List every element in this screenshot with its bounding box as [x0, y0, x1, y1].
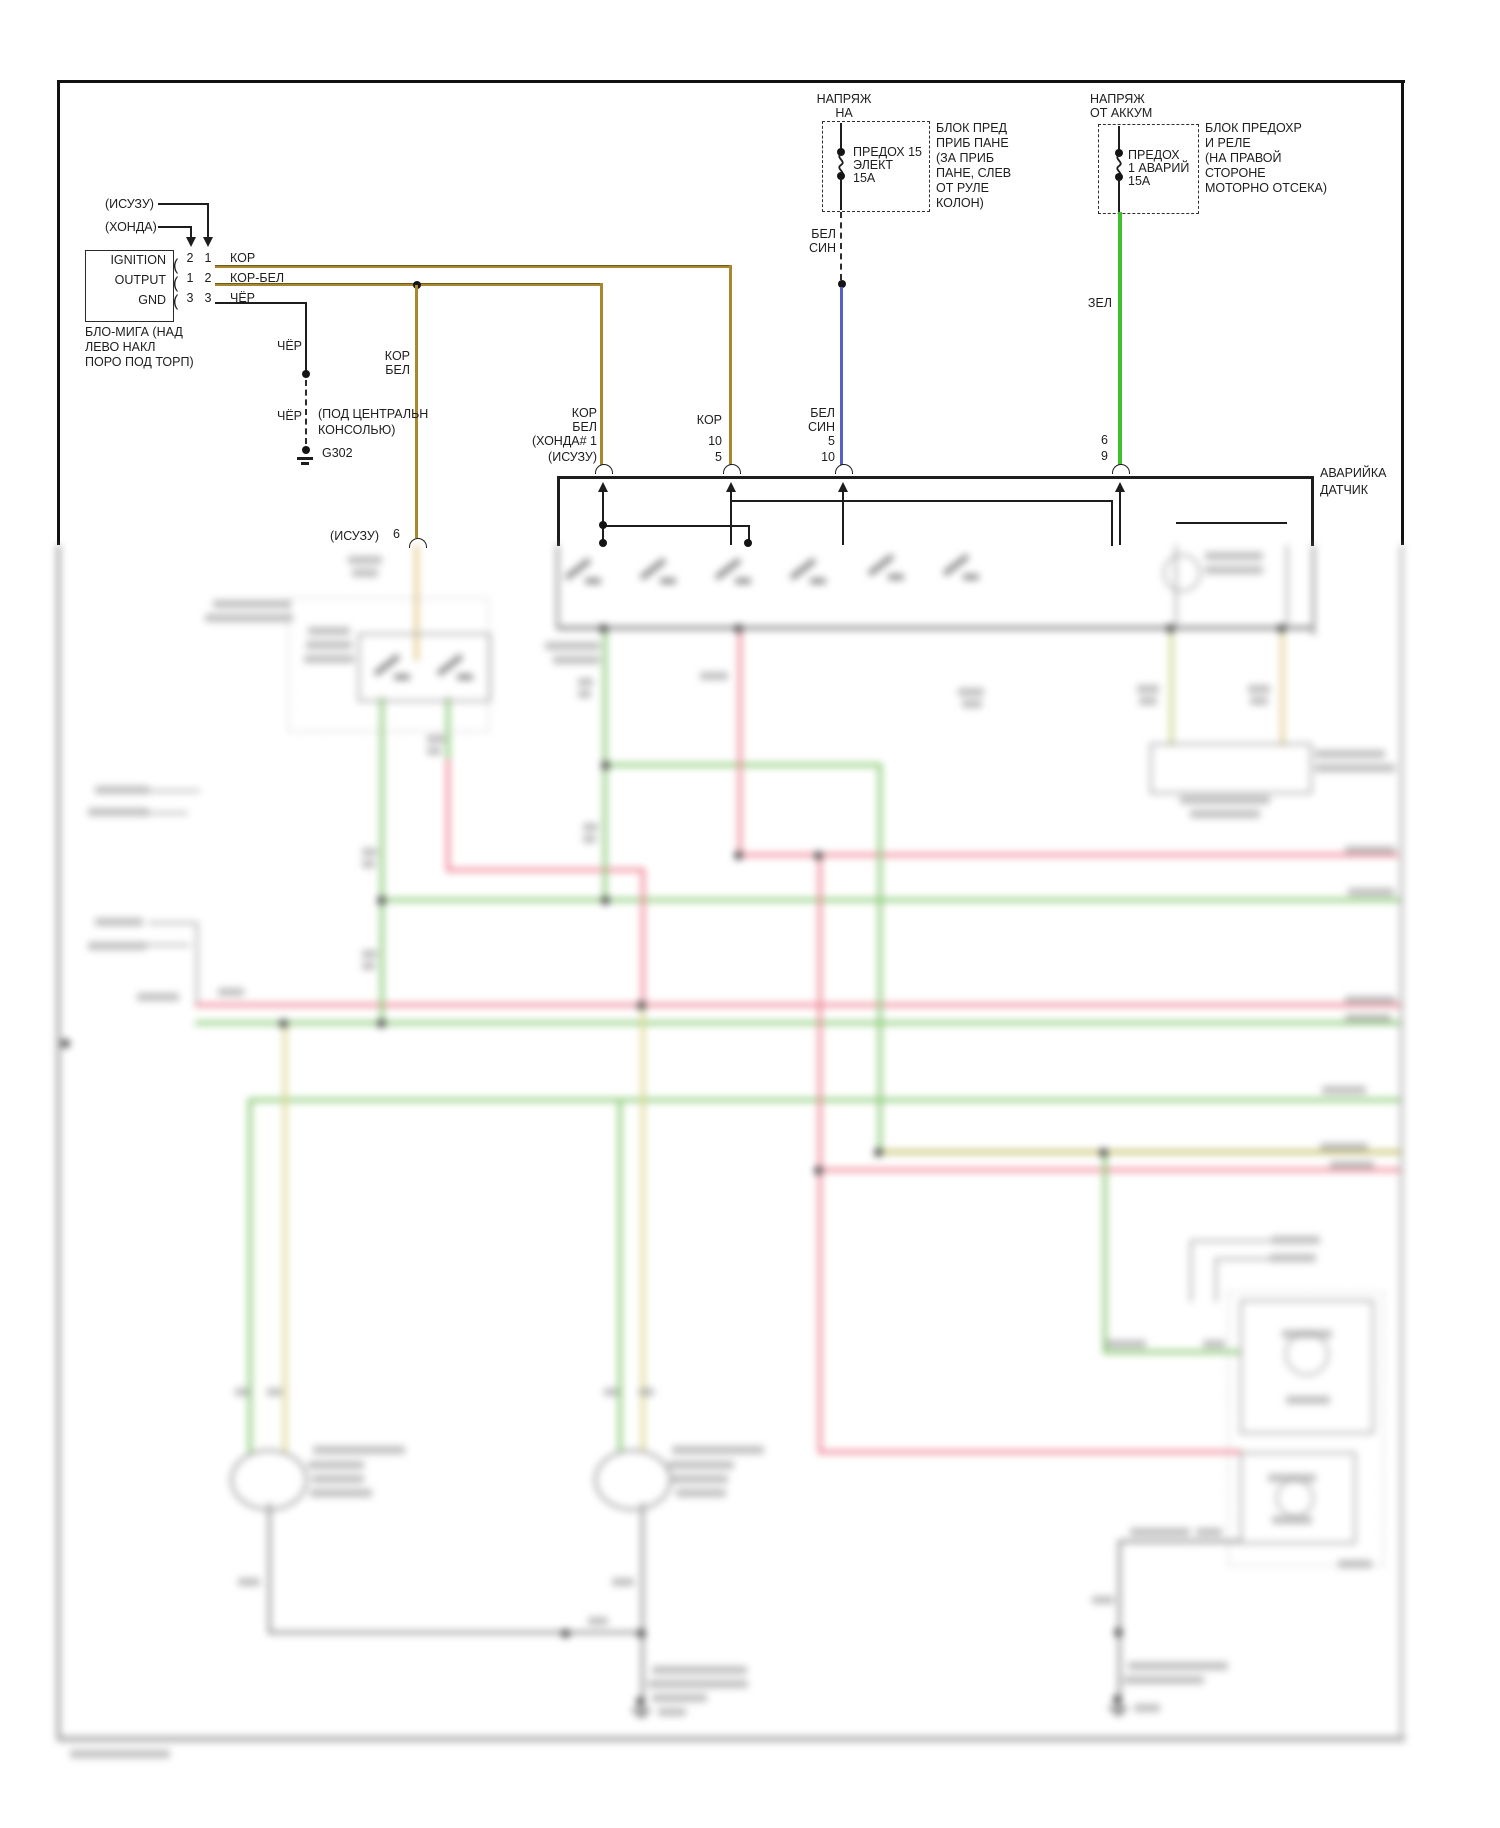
blurred-switch-icon [585, 578, 601, 584]
blurred-wire [380, 697, 384, 1024]
blurred-text-label [205, 614, 293, 622]
blurred-junction-dot [637, 1629, 646, 1638]
blurred-text-label [95, 786, 149, 794]
blurred-wire [268, 1631, 644, 1634]
blurred-junction-dot [561, 1629, 570, 1638]
blurred-text-label [1106, 1340, 1146, 1348]
blurred-lamp-circle [230, 1449, 308, 1511]
blurred-text-label [1345, 846, 1395, 854]
blurred-text-label [1137, 685, 1159, 693]
blurred-junction-dot [874, 1148, 883, 1157]
blurred-text-label [1286, 1396, 1330, 1404]
blurred-text-label [427, 735, 445, 743]
blurred-text-label [1345, 996, 1395, 1004]
blurred-text-label [1180, 796, 1270, 804]
blurred-wire [283, 1021, 287, 1453]
blurred-text-label [676, 1489, 726, 1497]
blurred-junction-dot [1114, 1628, 1123, 1637]
blurred-text-label [668, 1461, 734, 1469]
blurred-text-label [1330, 1161, 1374, 1169]
blurred-ground-icon [637, 1714, 646, 1717]
blurred-switch-icon [810, 578, 826, 584]
blurred-text-label [88, 808, 148, 816]
blurred-switch-icon [963, 574, 979, 580]
blurred-junction-dot [637, 1001, 646, 1010]
blurred-text-label [1320, 1143, 1368, 1151]
blurred-lamp-circle [1285, 1332, 1329, 1376]
blurred-ground-icon [1114, 1712, 1123, 1715]
blurred-ground-icon [636, 1697, 645, 1706]
blurred-wire [380, 898, 1400, 902]
blurred-text-label [1128, 1662, 1228, 1670]
blurred-wire [144, 944, 190, 946]
blurred-lamp-circle [594, 1449, 672, 1511]
blurred-text-label [1248, 685, 1270, 693]
blurred-text-label [652, 1666, 747, 1674]
blurred-text-label [1134, 1704, 1160, 1712]
blurred-lamp-circle [1163, 554, 1201, 592]
blurred-text-label [1268, 1474, 1316, 1482]
blurred-wire [1215, 1258, 1217, 1302]
blurred-text-label [612, 1578, 634, 1586]
blurred-wire [618, 1098, 622, 1454]
blurred-wire [57, 545, 60, 1738]
blurred-text-label [1270, 1254, 1316, 1262]
blurred-text-label [306, 641, 352, 649]
blurred-text-label [213, 600, 291, 608]
blurred-text-label [427, 747, 441, 755]
blurred-switch-icon [735, 578, 751, 584]
blurred-junction-dot [377, 896, 386, 905]
blurred-text-label [1272, 1516, 1312, 1524]
blurred-wire [818, 853, 822, 1453]
blurred-text-label [1322, 1086, 1366, 1094]
blurred-wire [818, 1450, 1242, 1454]
blurred-text-label [700, 672, 728, 680]
blurred-junction-dot [1277, 624, 1286, 633]
blurred-text-label [218, 988, 244, 996]
blurred-wire [1103, 1350, 1240, 1354]
blurred-junction-dot [601, 761, 610, 770]
blurred-wire [1286, 545, 1288, 629]
blurred-wire [1103, 1150, 1107, 1352]
blurred-wire [144, 812, 188, 814]
blurred-wire [148, 922, 198, 924]
blurred-wire [268, 1503, 271, 1634]
blurred-wire [603, 763, 880, 767]
blurred-text-label [1092, 1596, 1114, 1604]
blurred-lamp-circle [1276, 1479, 1314, 1517]
blurred-wire [557, 626, 1314, 630]
blurred-wire [641, 1503, 644, 1707]
blurred-wire [1118, 1540, 1121, 1706]
blurred-text-label [1338, 1560, 1372, 1568]
blurred-junction-dot [377, 1019, 386, 1028]
blurred-text-label [70, 1750, 170, 1758]
blurred-text-label [1348, 888, 1394, 896]
blurred-text-label [583, 835, 596, 843]
blurred-text-label [1272, 1236, 1320, 1244]
blurred-switch-icon [394, 674, 410, 680]
blurred-junction-dot [814, 851, 823, 860]
blurred-junction-dot [1166, 624, 1175, 633]
blurred-wire [57, 1736, 1405, 1742]
blurred-wire [148, 790, 200, 792]
blurred-junction-dot [734, 851, 743, 860]
blurred-text-label [312, 1475, 364, 1483]
blurred-text-label [1196, 1528, 1222, 1536]
blurred-text-label [1124, 1676, 1204, 1684]
blurred-text-label [578, 690, 591, 698]
blurred-text-label [545, 642, 600, 650]
blurred-text-label [1205, 552, 1263, 560]
blurred-text-label [1345, 1014, 1391, 1022]
blurred-text-label [962, 700, 982, 708]
blurred-diagram-region [0, 0, 1500, 1828]
blurred-text-label [235, 1388, 250, 1396]
blurred-text-label [1130, 1528, 1190, 1536]
blurred-wire [556, 545, 559, 629]
blurred-text-label [137, 993, 179, 1001]
blurred-junction-dot [814, 1166, 823, 1175]
blurred-wire [1190, 1240, 1274, 1242]
blurred-wire [818, 1168, 1400, 1172]
blurred-text-label [958, 688, 984, 696]
blurred-wire [641, 1003, 645, 1453]
blurred-text-label [1315, 764, 1395, 772]
blurred-text-label [362, 848, 377, 856]
blurred-wire [195, 1021, 1400, 1025]
blurred-text-label [267, 1388, 282, 1396]
blurred-junction-dot [601, 896, 610, 905]
blurred-junction-dot [734, 624, 743, 633]
blurred-text-label [348, 556, 382, 564]
blurred-text-label [362, 962, 375, 970]
blurred-component-box [1150, 743, 1312, 794]
blurred-text-label [1190, 810, 1260, 818]
blurred-text-label [652, 1694, 707, 1702]
blurred-text-label [352, 569, 378, 577]
blurred-text-label [553, 656, 600, 664]
blurred-text-label [95, 918, 143, 926]
blurred-text-label [583, 823, 598, 831]
blurred-junction-dot [599, 624, 608, 633]
blurred-text-label [313, 1446, 405, 1454]
blurred-text-label [304, 655, 354, 663]
blurred-text-label [1282, 1330, 1332, 1338]
blurred-wire [641, 868, 645, 1007]
blurred-text-label [1139, 697, 1157, 705]
blurred-wire [1400, 545, 1403, 1738]
blurred-text-label [1203, 1340, 1225, 1348]
blurred-text-label [648, 1680, 748, 1688]
blurred-junction-dot [1099, 1148, 1108, 1157]
blurred-text-label [658, 1708, 686, 1716]
blurred-text-label [238, 1578, 260, 1586]
blurred-wire [738, 853, 1398, 857]
blurred-wire [1281, 628, 1284, 746]
blurred-text-label [604, 1388, 619, 1396]
blurred-switch-icon [888, 574, 904, 580]
blurred-wire [1215, 1258, 1272, 1260]
blurred-ground-icon [632, 1709, 650, 1712]
blurred-junction-dot [279, 1019, 288, 1028]
blurred-switch-icon [457, 674, 473, 680]
blurred-wire [1190, 1240, 1192, 1302]
wiring-diagram-page: (ИСУЗУ) (ХОНДА) IGNITION OUTPUT GND БЛО-… [0, 0, 1500, 1828]
blurred-text-label [308, 627, 350, 635]
blurred-text-label [1250, 697, 1268, 705]
blurred-text-label [672, 1475, 728, 1483]
blurred-wire [196, 922, 198, 1004]
blurred-wire [446, 868, 644, 872]
blurred-text-label [578, 678, 593, 686]
blurred-text-label [1205, 566, 1263, 574]
blurred-switch-icon [660, 578, 676, 584]
blurred-text-label [1315, 750, 1385, 758]
blurred-wire [1170, 628, 1173, 746]
blurred-wire [195, 1003, 1400, 1007]
blurred-ground-icon [1109, 1707, 1127, 1710]
blurred-text-label [308, 1461, 364, 1469]
blurred-wire [1312, 545, 1315, 635]
blurred-text-label [672, 1446, 764, 1454]
blurred-ground-icon [1113, 1695, 1122, 1704]
blurred-wire [878, 763, 882, 1153]
blurred-wire [1118, 1540, 1242, 1543]
blurred-text-label [639, 1388, 654, 1396]
blurred-text-label [362, 860, 375, 868]
blurred-wire [248, 1098, 252, 1454]
blurred-wire [446, 759, 450, 871]
blurred-wire [248, 1098, 1400, 1102]
blurred-junction-dot [61, 1039, 70, 1048]
blurred-text-label [588, 1617, 608, 1625]
blurred-text-label [362, 950, 377, 958]
blurred-text-label [310, 1489, 372, 1497]
blurred-wire [738, 628, 742, 856]
blurred-text-label [88, 942, 146, 950]
